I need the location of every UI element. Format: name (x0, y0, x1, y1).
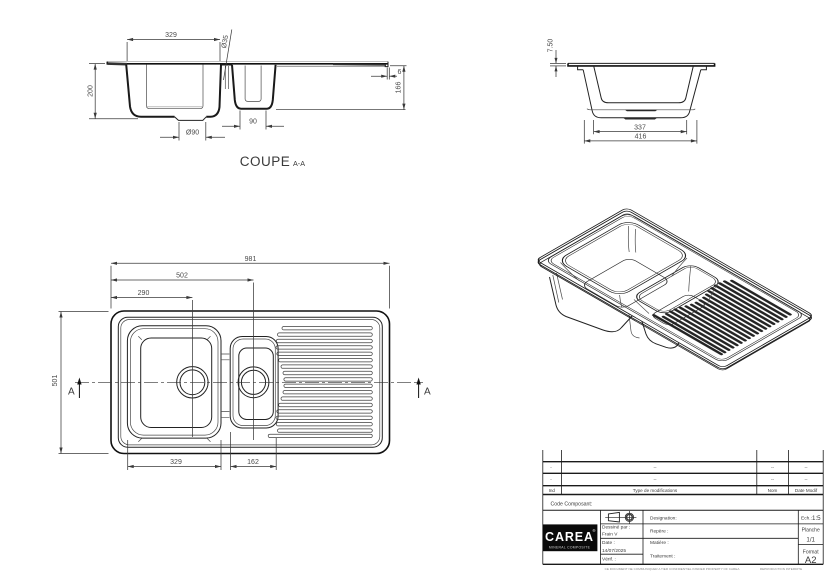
svg-text:Type de modifications: Type de modifications (633, 488, 678, 493)
svg-text:14/07/2025: 14/07/2025 (602, 548, 626, 554)
svg-text:1/1: 1/1 (806, 537, 815, 544)
svg-text:--: -- (804, 477, 808, 482)
svg-text:337: 337 (634, 124, 646, 131)
svg-text:®: ® (593, 528, 596, 533)
svg-text:Code Composant:: Code Composant: (551, 502, 593, 508)
svg-text:Matière :: Matière : (650, 540, 669, 546)
svg-text:Date :: Date : (602, 540, 615, 546)
svg-text:--: -- (771, 465, 775, 470)
svg-text:200: 200 (88, 85, 95, 97)
svg-text:MINERAL COMPOSITE: MINERAL COMPOSITE (549, 545, 591, 549)
svg-text:290: 290 (138, 290, 150, 297)
svg-text:Ind: Ind (549, 488, 556, 493)
svg-text:CE DOCUMENT NE COMMUNIQUER A T: CE DOCUMENT NE COMMUNIQUER A TIER CONFID… (605, 567, 741, 571)
svg-text:--: -- (804, 465, 808, 470)
svg-text:A2: A2 (805, 555, 817, 566)
svg-text:COUPE: COUPE (240, 154, 291, 169)
svg-text:90: 90 (249, 119, 257, 126)
svg-text:329: 329 (170, 459, 182, 466)
svg-text:Date Modif: Date Modif (795, 488, 818, 493)
svg-text:CAREA: CAREA (545, 530, 594, 544)
svg-text:1:5: 1:5 (812, 515, 821, 522)
svg-text:--: -- (653, 477, 657, 482)
svg-text:416: 416 (635, 134, 647, 141)
svg-text:--: -- (771, 477, 775, 482)
svg-text:A-A: A-A (293, 159, 305, 168)
svg-text:Traitement :: Traitement : (650, 554, 675, 560)
svg-text:981: 981 (245, 256, 257, 263)
svg-text:162: 162 (247, 459, 259, 466)
svg-text:Planche: Planche (802, 528, 820, 534)
svg-text:329: 329 (165, 32, 177, 39)
svg-text:Repère :: Repère : (650, 529, 668, 535)
svg-text:Vérif. :: Vérif. : (602, 557, 616, 563)
svg-text:Designation:: Designation: (650, 516, 677, 522)
svg-text:166: 166 (396, 82, 403, 94)
svg-text:501: 501 (52, 375, 59, 387)
svg-text:Frain V: Frain V (602, 532, 618, 538)
svg-text:--: -- (653, 465, 657, 470)
svg-text:502: 502 (176, 273, 188, 280)
svg-text:Nom: Nom (768, 488, 778, 493)
svg-text:7.50: 7.50 (548, 39, 555, 53)
svg-text:6: 6 (398, 69, 402, 76)
svg-text:Dessiné par :: Dessiné par : (602, 525, 630, 531)
svg-text:A: A (424, 387, 431, 398)
svg-text:Ech.:: Ech.: (801, 516, 812, 522)
svg-text:Ø90: Ø90 (186, 130, 199, 137)
svg-text:A: A (68, 387, 75, 398)
svg-text:REPRODUCTION INTERDITE: REPRODUCTION INTERDITE (760, 567, 802, 571)
